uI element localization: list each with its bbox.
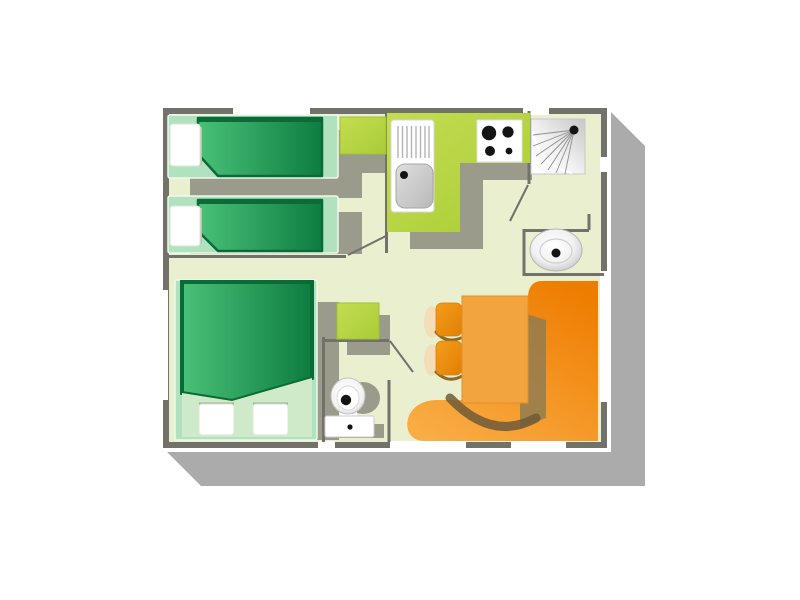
burner-small	[506, 148, 513, 155]
pillow	[170, 206, 200, 246]
blanket-top-band	[198, 118, 322, 122]
dining-table	[462, 296, 528, 403]
window-right-small	[600, 157, 609, 172]
pillow-right	[253, 404, 288, 435]
burner-medium-2	[485, 146, 495, 156]
sink-basin	[396, 164, 433, 208]
washbasin	[530, 229, 582, 271]
single-bed-2	[168, 196, 338, 253]
blanket	[198, 118, 322, 176]
window-bottom-left	[390, 441, 466, 450]
shower-head-icon	[570, 126, 579, 135]
single-bed-1	[168, 115, 338, 178]
basin-drain	[552, 249, 561, 258]
flush-button	[347, 424, 352, 429]
window-bottom-wc	[318, 441, 335, 450]
window-left	[158, 290, 168, 400]
toilet-drain	[341, 395, 351, 405]
blanket-top-band	[198, 200, 322, 204]
hob	[477, 120, 522, 162]
floor-plan-page	[0, 0, 800, 600]
master-bedroom	[175, 280, 317, 440]
shower	[531, 119, 585, 174]
window-top-left	[233, 105, 310, 115]
blanket	[198, 200, 322, 251]
pillow-left	[199, 404, 234, 435]
floor-plan-canvas	[0, 0, 800, 600]
wardrobe	[340, 117, 386, 154]
wc-cabinet	[337, 303, 379, 339]
pillow	[170, 124, 200, 166]
double-bed-blanket	[182, 282, 312, 401]
sink-unit	[391, 120, 434, 212]
sink-drain	[400, 171, 408, 179]
chair-1	[436, 303, 462, 336]
chair-2	[436, 341, 462, 375]
hob-plate	[477, 120, 522, 162]
window-bottom-right	[511, 441, 566, 450]
burner-large	[482, 126, 496, 140]
window-right-large	[600, 271, 609, 402]
burner-medium	[502, 126, 513, 137]
